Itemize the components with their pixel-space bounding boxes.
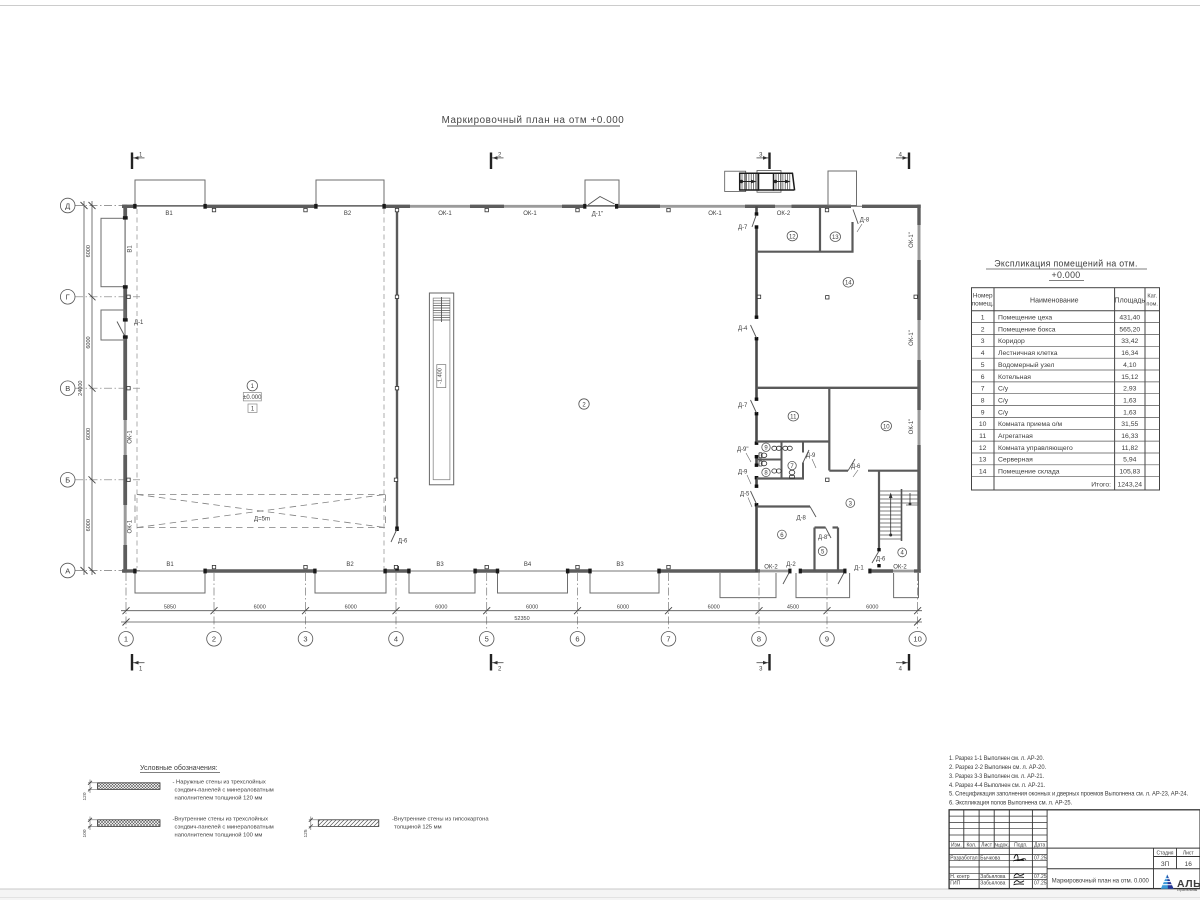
svg-text:100: 100 [82,829,88,837]
svg-text:-1.400: -1.400 [437,368,443,384]
svg-text:431,40: 431,40 [1119,315,1140,322]
svg-text:Д-1: Д-1 [134,320,144,326]
svg-text:ОК-2: ОК-2 [777,211,791,217]
svg-text:Помещение цеха: Помещение цеха [998,315,1052,322]
svg-text:3. Разрез 3-3 Выполнен см. л.: 3. Разрез 3-3 Выполнен см. л. АР-21. [949,773,1044,780]
svg-text:4. Разрез 4-4 Выполнен см. л.: 4. Разрез 4-4 Выполнен см. л. АР-21. [949,782,1045,789]
svg-text:Д-7: Д-7 [738,225,748,231]
svg-text:14: 14 [845,281,852,287]
svg-text:№док.: №док. [994,842,1009,848]
svg-text:ОК-1: ОК-1 [128,519,134,533]
svg-text:В3: В3 [616,562,624,568]
svg-text:ОК-2: ОК-2 [764,564,778,570]
svg-text:10: 10 [913,635,921,644]
svg-text:В1: В1 [128,245,134,253]
svg-text:С/у: С/у [998,386,1009,393]
svg-text:ОК-1: ОК-1 [523,211,537,217]
svg-text:Д-6: Д-6 [851,464,861,470]
svg-text:4: 4 [981,350,985,357]
svg-text:А: А [65,566,70,575]
svg-text:Забьялова: Забьялова [980,874,1005,880]
svg-text:15,12: 15,12 [1121,374,1138,381]
svg-text:Г: Г [66,293,70,302]
svg-text:Д-9: Д-9 [738,470,748,476]
svg-text:1243,24: 1243,24 [1118,482,1143,489]
svg-text:С/у: С/у [998,409,1009,416]
svg-text:ОК-1": ОК-1" [909,232,915,248]
svg-text:Маркировочный план на отм. 0.0: Маркировочный план на отм. 0.000 [1052,877,1149,885]
svg-text:Д-8: Д-8 [860,218,870,224]
svg-text:4,10: 4,10 [1123,362,1136,369]
svg-text:Д-7: Д-7 [738,403,748,409]
svg-text:Коридор: Коридор [998,338,1025,345]
svg-text:12: 12 [979,445,987,452]
svg-text:Д=5m: Д=5m [254,517,270,523]
svg-text:±0.000: ±0.000 [243,395,262,401]
svg-text:9: 9 [981,409,985,416]
svg-text:07.25: 07.25 [1034,856,1047,862]
svg-text:24000: 24000 [78,381,84,396]
svg-text:Дата: Дата [1034,842,1045,848]
svg-text:5,94: 5,94 [1123,457,1136,464]
svg-text:ОК-1": ОК-1" [909,419,915,435]
svg-text:8: 8 [981,398,985,405]
svg-text:сэндвич-панелей с минераловатн: сэндвич-панелей с минераловатным [175,787,274,794]
svg-text:В: В [65,384,70,393]
svg-text:13: 13 [979,457,987,464]
svg-text:Лист: Лист [981,842,993,848]
svg-text:Бычкова: Бычкова [980,856,1000,862]
svg-text:11,82: 11,82 [1122,445,1139,452]
svg-text:ОК-1: ОК-1 [438,211,452,217]
svg-text:4500: 4500 [787,605,799,611]
svg-text:6000: 6000 [86,428,92,440]
svg-text:С/у: С/у [998,398,1009,405]
svg-text:строительная: строительная [1177,888,1198,892]
svg-text:52350: 52350 [514,616,529,622]
svg-text:Номер: Номер [973,293,993,300]
svg-text:Изм.: Изм. [951,842,962,848]
svg-text:Д-6: Д-6 [876,557,886,563]
svg-text:120: 120 [82,792,88,800]
svg-text:565,20: 565,20 [1119,326,1140,333]
svg-text:13: 13 [832,235,839,241]
svg-text:Д-8": Д-8" [818,535,830,541]
svg-text:Лестничная клетка: Лестничная клетка [998,350,1058,357]
svg-text:Д-2: Д-2 [786,562,796,568]
svg-text:6. Экспликация полов Выполнена: 6. Экспликация полов Выполнена см. л. АР… [949,800,1072,807]
svg-text:В4: В4 [524,562,532,568]
svg-text:ОК-1": ОК-1" [909,330,915,346]
svg-text:ОК-2: ОК-2 [893,565,907,571]
svg-text:2,93: 2,93 [1123,386,1136,393]
svg-text:В2: В2 [346,562,354,568]
svg-text:16,34: 16,34 [1121,350,1138,357]
svg-text:07.25: 07.25 [1034,874,1047,880]
svg-text:1. Разрез 1-1 Выполнен см. л.: 1. Разрез 1-1 Выполнен см. л. АР-20. [949,755,1044,762]
svg-text:1,63: 1,63 [1123,398,1136,405]
svg-text:4: 4 [394,635,398,644]
svg-text:5: 5 [485,635,489,644]
svg-text:10: 10 [979,421,987,428]
svg-text:Разработал: Разработал [950,856,977,862]
svg-text:2: 2 [981,326,985,333]
svg-text:Лист: Лист [1183,851,1195,857]
svg-text:В2: В2 [344,211,352,217]
svg-text:10: 10 [883,424,890,430]
svg-text:6: 6 [981,374,985,381]
svg-text:Комната приема о/м: Комната приема о/м [998,421,1063,428]
svg-text:Итого:: Итого: [1091,482,1111,489]
svg-text:ГИП: ГИП [950,880,960,886]
svg-text:6: 6 [575,635,579,644]
svg-text:Д-4: Д-4 [738,326,748,332]
svg-text:Д: Д [65,201,70,210]
svg-text:толщиной 125 мм: толщиной 125 мм [394,824,442,831]
svg-text:Д-5: Д-5 [740,492,750,498]
svg-text:ЗП: ЗП [1161,861,1170,868]
svg-text:16,33: 16,33 [1121,433,1138,440]
svg-text:+0.000: +0.000 [1052,270,1081,280]
svg-text:11: 11 [979,433,986,440]
svg-text:31,55: 31,55 [1121,421,1138,428]
svg-text:07.25: 07.25 [1034,880,1047,886]
svg-text:Подп.: Подп. [1014,842,1027,848]
svg-text:В1: В1 [165,211,173,217]
svg-text:6000: 6000 [86,519,92,531]
svg-text:Д-6: Д-6 [398,539,408,545]
svg-text:1,63: 1,63 [1123,409,1136,416]
svg-text:1: 1 [981,315,985,322]
svg-text:Д-9: Д-9 [806,453,816,459]
svg-text:Серверная: Серверная [998,457,1033,464]
svg-text:11: 11 [790,415,797,421]
svg-text:6000: 6000 [254,605,266,611]
svg-text:Агрегатная: Агрегатная [998,433,1033,440]
svg-text:ОК-1: ОК-1 [128,430,134,444]
svg-text:Помещение склада: Помещение склада [998,469,1060,476]
svg-text:6000: 6000 [866,605,878,611]
svg-text:105,83: 105,83 [1119,469,1140,476]
svg-text:наполнителем толщиной 100 мм: наполнителем толщиной 100 мм [175,832,263,839]
svg-text:Маркировочный план на отм +0.0: Маркировочный план на отм +0.000 [442,115,625,126]
svg-text:- Наружные стены из трехслойны: - Наружные стены из трехслойных [173,779,266,786]
svg-text:Д-8: Д-8 [797,516,807,522]
svg-text:Площадь: Площадь [1115,298,1146,305]
svg-text:2. Разрез 2-2 Выполнен см. л.: 2. Разрез 2-2 Выполнен см. л. АР-20. [949,764,1046,771]
svg-text:125: 125 [303,829,309,837]
svg-text:12: 12 [789,234,796,240]
svg-text:6000: 6000 [86,336,92,348]
svg-text:Д-1: Д-1 [854,566,864,572]
svg-text:3: 3 [981,338,985,345]
svg-text:пом.: пом. [1146,302,1158,308]
svg-text:2: 2 [212,635,216,644]
svg-text:Н. контр: Н. контр [950,874,969,880]
svg-text:В1: В1 [166,562,174,568]
svg-text:Кол.: Кол. [966,842,976,848]
svg-text:В3: В3 [436,562,444,568]
svg-text:Кат.: Кат. [1147,294,1157,300]
svg-text:5: 5 [981,362,985,369]
svg-text:Д-9": Д-9" [737,447,749,453]
svg-text:7: 7 [666,635,670,644]
svg-text:помещ.: помещ. [972,301,994,308]
svg-text:6000: 6000 [435,605,447,611]
svg-text:Забьялова: Забьялова [980,880,1005,886]
svg-text:16: 16 [1185,861,1193,868]
svg-text:6000: 6000 [345,605,357,611]
svg-text:6000: 6000 [617,605,629,611]
svg-text:Комната управляющего: Комната управляющего [998,445,1073,452]
svg-text:Экспликация помещений на отм.: Экспликация помещений на отм. [994,259,1137,269]
svg-text:8: 8 [757,635,761,644]
svg-text:сэндвич-панелей с минераловатн: сэндвич-панелей с минераловатным [175,824,274,831]
svg-text:5850: 5850 [164,605,176,611]
svg-text:5. Спецификация заполнения око: 5. Спецификация заполнения оконных и две… [949,791,1188,798]
svg-text:Д-1": Д-1" [592,212,604,218]
svg-text:-Внутренние стены из трехслойн: -Внутренние стены из трехслойных [173,816,269,823]
svg-text:Б: Б [65,476,70,485]
svg-text:9: 9 [825,635,829,644]
svg-text:Котельная: Котельная [998,374,1031,381]
svg-text:14: 14 [979,469,987,476]
svg-text:7: 7 [981,386,985,393]
svg-text:Условные обозначения:: Условные обозначения: [140,764,218,772]
svg-text:наполнителем толщиной 120 мм: наполнителем толщиной 120 мм [175,795,263,802]
svg-text:3: 3 [303,635,307,644]
svg-text:Стадия: Стадия [1156,851,1173,857]
svg-text:6000: 6000 [708,605,720,611]
svg-text:33,42: 33,42 [1121,338,1138,345]
svg-text:6000: 6000 [86,245,92,257]
svg-text:Водомерный узел: Водомерный узел [998,361,1054,369]
svg-text:Помещение бокса: Помещение бокса [998,325,1056,333]
svg-text:1: 1 [124,635,128,644]
svg-text:6000: 6000 [526,605,538,611]
svg-text:ОК-1: ОК-1 [708,211,722,217]
svg-text:-Внутренние стены из гипсокарт: -Внутренние стены из гипсокартона [392,817,489,823]
svg-text:Наименование: Наименование [1030,298,1079,305]
